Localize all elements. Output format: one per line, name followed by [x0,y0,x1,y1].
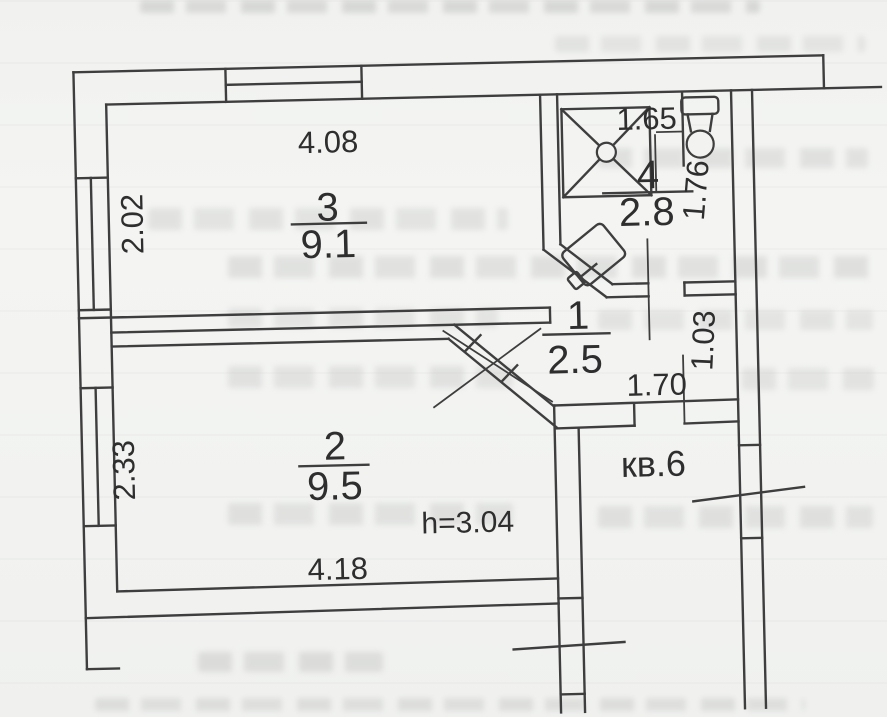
room4-area: 2.8 [618,190,675,235]
floor-plan-canvas: 4.08 2.02 3 9.1 1.65 4 2.8 1.76 1 2.5 1.… [0,0,887,717]
room4-door-leaf [647,239,649,339]
dim-room2-left: 2.33 [106,440,142,501]
scanned-floor-plan-sheet: 4.08 2.02 3 9.1 1.65 4 2.8 1.76 1 2.5 1.… [0,0,887,717]
dim-room3-left: 2.02 [114,193,150,254]
room3-room2-divider-wall [79,308,551,348]
room2-number: 2 [323,424,346,468]
room3-window [76,178,111,311]
room2-area: 9.5 [307,464,364,509]
toilet-icon [681,97,719,158]
top-wall [73,54,881,105]
top-wall-window [225,66,362,102]
room2-hall-diagonal-wall [448,322,556,429]
dim-room3-top: 4.08 [298,124,359,160]
dim-room4-right: 1.76 [676,159,716,222]
room1-number: 1 [566,294,589,338]
room1-area: 2.5 [547,337,604,382]
dim-corridor-right: 1.03 [684,309,722,371]
dim-room4-top: 1.65 [616,101,677,137]
ceiling-height-label: h=3.04 [421,505,514,540]
dim-room2-bottom: 4.18 [307,551,368,587]
left-wall [73,72,119,670]
room3-area: 9.1 [300,222,357,267]
apartment-label: кв.6 [621,443,687,485]
dim-hall-bottom: 1.70 [626,366,687,402]
